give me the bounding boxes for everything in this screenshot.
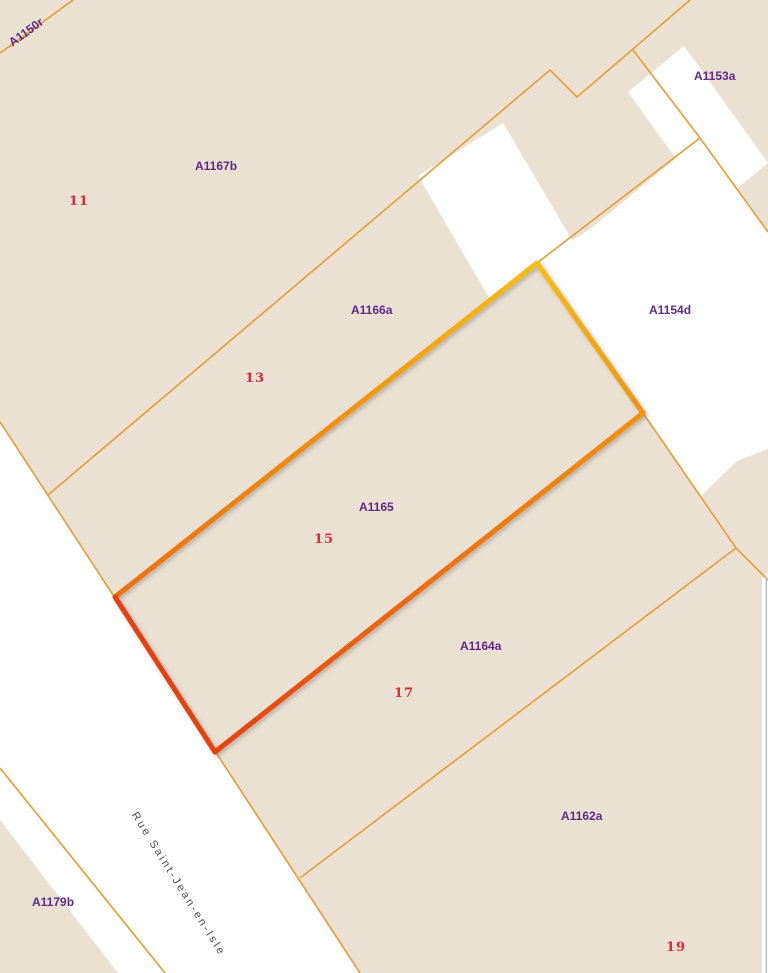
parcel-label-a1166a: A1166a [351, 303, 392, 317]
parcel-label-a1154d: A1154d [649, 303, 691, 317]
cadastral-map-layer [0, 0, 768, 973]
map-edge-line [766, 578, 768, 973]
parcel-label-a1179b: A1179b [32, 895, 74, 909]
house-number-17: 17 [394, 686, 414, 701]
parcel-label-a1164a: A1164a [460, 639, 501, 653]
parcel-label-a1153a: A1153a [694, 69, 735, 83]
parcel-label-a1167b: A1167b [195, 159, 237, 173]
house-number-19: 19 [666, 940, 686, 955]
house-number-13: 13 [245, 371, 265, 386]
parcel-label-a1165: A1165 [359, 500, 394, 514]
house-number-11: 11 [69, 194, 89, 209]
house-number-15: 15 [314, 532, 334, 547]
parcel-label-a1162a: A1162a [561, 809, 602, 823]
map-canvas[interactable]: A1150r A1167b A1153a A1166a A1154d A1165… [0, 0, 768, 973]
